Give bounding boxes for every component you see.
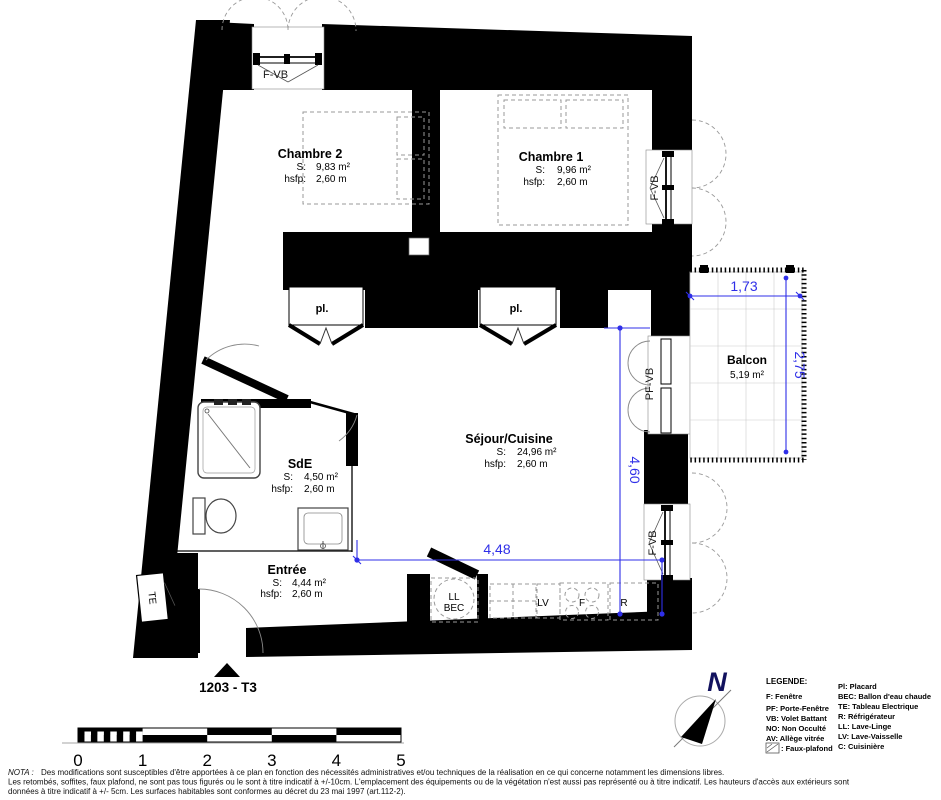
- room-label-chambre2: Chambre 2 S: 9,83 m² hsfp: 2,60 m: [278, 147, 351, 185]
- height-key: hsfp:: [484, 459, 506, 470]
- washbasin: [298, 508, 348, 550]
- placard-1: pl.: [289, 287, 363, 344]
- height-key: hsfp:: [260, 589, 282, 600]
- unit-triangle-icon: [214, 663, 240, 677]
- legend-item: PF: Porte-Fenêtre: [766, 704, 829, 713]
- faux-plafond-icon: [766, 743, 779, 753]
- nota-block: NOTA : Des modifications sont susceptibl…: [8, 768, 850, 796]
- nota-line-3: données à titre indicatif à +/- 5cm. Les…: [8, 787, 406, 796]
- surface-key: S:: [497, 447, 506, 458]
- nota-label: NOTA :: [8, 768, 34, 777]
- dim-label: 2,75: [792, 351, 808, 378]
- surface-value: 4,50 m²: [304, 472, 339, 483]
- dim-label: 1,73: [730, 278, 757, 294]
- surface-key: S:: [284, 472, 293, 483]
- room-label-sde: SdE S: 4,50 m² hsfp: 2,60 m: [271, 457, 338, 495]
- room-name: Séjour/Cuisine: [465, 432, 553, 446]
- window-label: F-VB: [647, 530, 659, 555]
- north-arrow: N: [674, 667, 731, 747]
- appliance-r-label: R: [620, 598, 627, 609]
- dimension-sejour-width: 4,48: [353, 540, 665, 617]
- legend-item: BEC: Ballon d'eau chaude: [838, 692, 931, 701]
- room-name: Chambre 1: [519, 150, 584, 164]
- legend-item: VB: Volet Battant: [766, 714, 827, 723]
- legend-item: NO: Non Occulté: [766, 724, 826, 733]
- legend: LEGENDE: F: Fenêtre PF: Porte-Fenêtre VB…: [766, 677, 931, 753]
- surface-value: 9,83 m²: [316, 162, 351, 173]
- appliance-f-label: F: [579, 598, 585, 609]
- surface-key: S:: [536, 165, 545, 176]
- legend-item: C: Cuisinière: [838, 742, 884, 751]
- room-name: SdE: [288, 457, 312, 471]
- surface-key: S:: [273, 578, 282, 589]
- room-label-chambre1: Chambre 1 S: 9,96 m² hsfp: 2,60 m: [519, 150, 592, 188]
- window-label: F-VB: [649, 175, 661, 200]
- unit-label: 1203 - T3: [199, 680, 257, 695]
- legend-item: R: Réfrigérateur: [838, 712, 895, 721]
- nota-line-1: Des modifications sont susceptibles d'êt…: [41, 768, 724, 777]
- room-label-sejour: Séjour/Cuisine S: 24,96 m² hsfp: 2,60 m: [465, 432, 557, 470]
- door-corridor: [206, 344, 259, 360]
- legend-item-faux-plafond: : Faux-plafond: [781, 744, 833, 753]
- door-label: PF-VB: [644, 368, 656, 400]
- dim-label: 4,48: [483, 541, 510, 557]
- scale-bar: 0 1 2 3 4 5: [62, 728, 406, 770]
- electrical-label: TE: [145, 591, 157, 605]
- height-value: 2,60 m: [292, 589, 323, 600]
- legend-title: LEGENDE:: [766, 677, 807, 686]
- legend-item: Pl: Placard: [838, 682, 877, 691]
- height-value: 2,60 m: [557, 177, 588, 188]
- placard-label: pl.: [316, 303, 329, 315]
- wall-niche: [409, 238, 429, 255]
- appliance-lv-label: LV: [537, 598, 549, 609]
- floor-plan-canvas: F-VB F-VB PF-VB F-VB: [0, 0, 941, 800]
- dim-label: 4,60: [627, 456, 643, 483]
- appliance-ll-label: LL: [448, 592, 460, 603]
- toilet: [193, 498, 236, 534]
- height-key: hsfp:: [523, 177, 545, 188]
- surface-value: 4,44 m²: [292, 578, 327, 589]
- placard-label: pl.: [510, 303, 523, 315]
- legend-item: TE: Tableau Electrique: [838, 702, 918, 711]
- legend-item: AV: Allège vitrée: [766, 734, 824, 743]
- nota-line-2: Les retombés, soffites, faux plafond, ne…: [8, 778, 850, 787]
- room-label-entree: Entrée S: 4,44 m² hsfp: 2,60 m: [260, 563, 326, 600]
- room-name: Entrée: [268, 563, 307, 577]
- height-value: 2,60 m: [304, 484, 335, 495]
- appliance-bec-label: BEC: [444, 603, 465, 614]
- room-surface-balcon: 5,19 m²: [730, 370, 765, 381]
- room-name-balcon: Balcon: [727, 353, 767, 367]
- legend-item: F: Fenêtre: [766, 692, 802, 701]
- placard-2: pl.: [480, 287, 556, 344]
- balcony: Balcon 5,19 m²: [686, 265, 806, 460]
- height-key: hsfp:: [271, 484, 293, 495]
- north-label: N: [707, 667, 727, 697]
- window-label: F-VB: [263, 69, 288, 81]
- height-value: 2,60 m: [316, 174, 347, 185]
- legend-item: LL: Lave-Linge: [838, 722, 891, 731]
- surface-value: 9,96 m²: [557, 165, 592, 176]
- walls: [133, 20, 692, 658]
- surface-value: 24,96 m²: [517, 447, 557, 458]
- height-key: hsfp:: [284, 174, 306, 185]
- legend-item: LV: Lave-Vaisselle: [838, 732, 902, 741]
- shower: [198, 399, 260, 478]
- surface-key: S:: [297, 162, 306, 173]
- height-value: 2,60 m: [517, 459, 548, 470]
- unit-marker: 1203 - T3: [199, 663, 257, 695]
- north-needle-icon: [681, 699, 716, 744]
- room-name: Chambre 2: [278, 147, 343, 161]
- floor-plan-page: F-VB F-VB PF-VB F-VB: [0, 0, 941, 800]
